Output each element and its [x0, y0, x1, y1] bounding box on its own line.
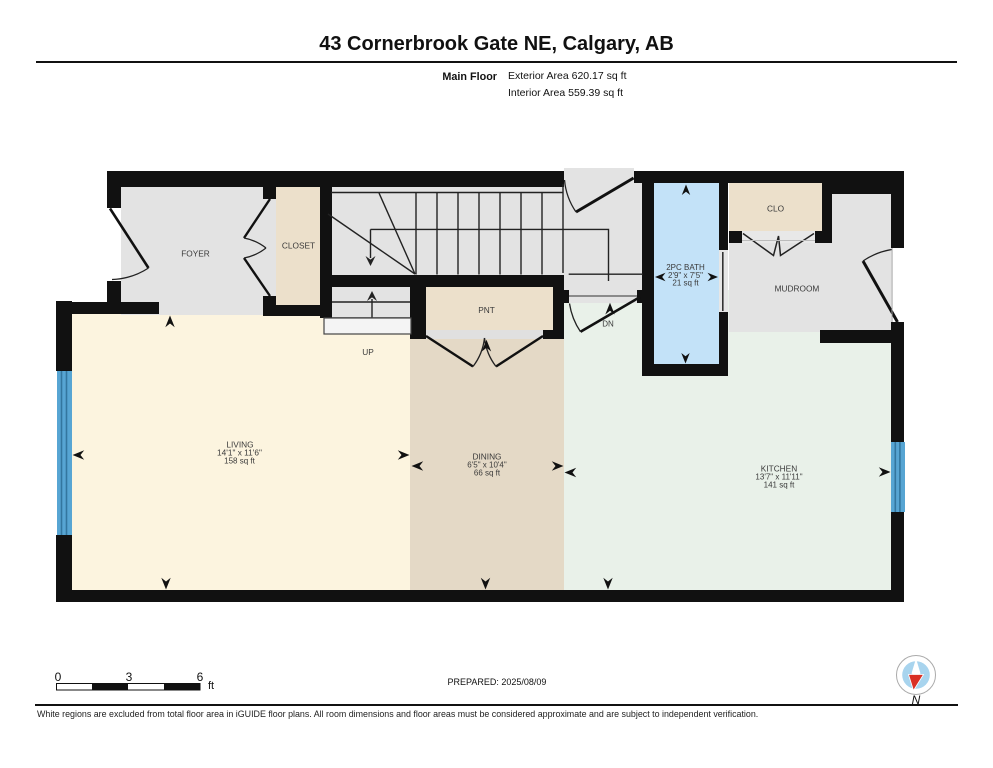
- svg-text:UP: UP: [362, 347, 374, 357]
- svg-text:66 sq ft: 66 sq ft: [474, 469, 501, 478]
- svg-text:FOYER: FOYER: [181, 249, 210, 259]
- svg-text:158 sq ft: 158 sq ft: [224, 457, 255, 466]
- svg-text:CLOSET: CLOSET: [282, 241, 315, 251]
- svg-text:CLO: CLO: [767, 204, 785, 214]
- svg-text:DN: DN: [602, 320, 614, 329]
- svg-text:MUDROOM: MUDROOM: [775, 284, 820, 294]
- svg-text:141 sq ft: 141 sq ft: [764, 481, 795, 490]
- svg-text:21 sq ft: 21 sq ft: [672, 279, 699, 288]
- svg-text:PNT: PNT: [478, 305, 495, 315]
